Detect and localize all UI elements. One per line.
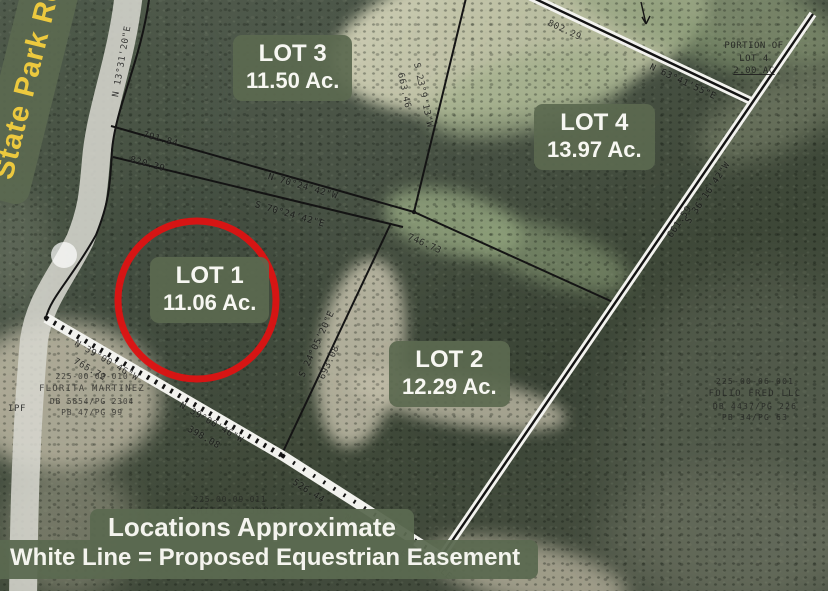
lot-name: LOT 2	[402, 346, 497, 374]
parcel-id: 225-00-09-011	[140, 494, 320, 506]
parcel-note-martinez: 225-00-09-010 FLORITA MARTINEZ DB 5854/P…	[22, 371, 162, 419]
boundary-lot4-lot2	[414, 212, 615, 303]
boundary-lot3-south	[111, 126, 414, 212]
lot4-label: LOT 4 13.97 Ac.	[534, 104, 655, 170]
boundary-lot1-lot2	[281, 223, 391, 456]
lot-acreage: 12.29 Ac.	[402, 374, 497, 400]
lot-name: LOT 1	[163, 262, 256, 290]
parcel-deed: DB 4437/PG 226	[690, 401, 820, 413]
portion-of-lot4-note: PORTION OF LOT 4 2.00 AC	[710, 40, 798, 78]
parcel-id: 225-00-06-001	[690, 376, 820, 388]
portion-line2: LOT 4	[710, 53, 798, 66]
easement-line-east	[441, 14, 813, 557]
plat-map: N 13°31'20"E791.84820.29N 70°24'42"WS 70…	[0, 0, 828, 591]
lot2-label: LOT 2 12.29 Ac.	[389, 341, 510, 407]
legend-banner: White Line = Proposed Equestrian Easemen…	[0, 540, 538, 579]
lot3-label: LOT 3 11.50 Ac.	[233, 35, 352, 101]
plat-line-overlay	[0, 0, 828, 591]
north-tick-mark	[641, 2, 650, 24]
parcel-owner: FOLIO FRED LLC	[690, 388, 820, 401]
lot-acreage: 11.06 Ac.	[163, 290, 256, 316]
parcel-id: 225-00-09-010	[22, 371, 162, 383]
lot-acreage: 13.97 Ac.	[547, 137, 642, 163]
survey-point-marker	[51, 242, 77, 268]
parcel-deed: DB 5854/PG 2304	[22, 396, 162, 408]
lot-name: LOT 3	[246, 40, 339, 68]
portion-line1: PORTION OF	[710, 40, 798, 53]
parcel-note-folio-fred: 225-00-06-001 FOLIO FRED LLC DB 4437/PG …	[690, 376, 820, 424]
parcel-platbook: PB 47/PG 99	[22, 407, 162, 419]
lot-name: LOT 4	[547, 109, 642, 137]
lot-acreage: 11.50 Ac.	[246, 68, 339, 94]
parcel-owner: FLORITA MARTINEZ	[22, 383, 162, 396]
parcel-platbook: PB 34/PG 63	[690, 412, 820, 424]
lot1-label: LOT 1 11.06 Ac.	[150, 257, 269, 323]
boundary-lot3-lot4	[414, 0, 467, 212]
portion-acreage: 2.00 AC	[710, 65, 798, 78]
